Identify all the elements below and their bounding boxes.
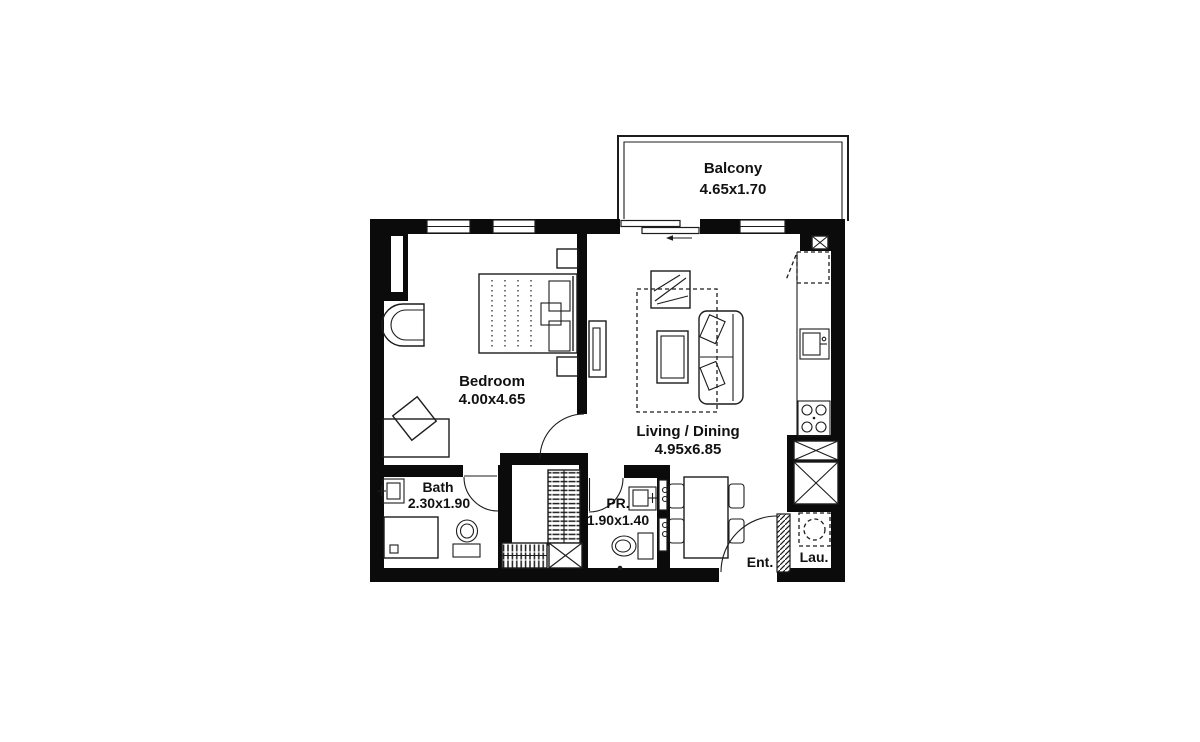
- label-powder-room: PR. 1.90x1.40: [587, 495, 649, 528]
- floor-plan-page: Balcony 4.65x1.70 Bedroom 4.00x4.65 Livi…: [0, 0, 1200, 742]
- entrance-name: Ent.: [747, 554, 773, 570]
- kitchen-sink: [800, 329, 829, 359]
- pr-dims: 1.90x1.40: [587, 512, 649, 528]
- coffee-table: [657, 331, 688, 383]
- sofa: [699, 311, 743, 404]
- shaft-boxes: [794, 441, 838, 504]
- bedroom-window-2: [493, 220, 535, 233]
- bath-name: Bath: [422, 479, 453, 495]
- wardrobe-vertical: [548, 470, 580, 545]
- bedroom-window-1: [427, 220, 470, 233]
- tv-console: [589, 321, 606, 377]
- balcony-dims: 4.65x1.70: [700, 181, 767, 198]
- shaft-box-hall: [549, 543, 582, 568]
- pr-sink: [629, 487, 657, 510]
- living-dining-name: Living / Dining: [636, 423, 739, 440]
- living-window: [740, 220, 785, 233]
- bathtub: [384, 517, 438, 558]
- balcony-sliding-door: [620, 219, 700, 241]
- bedroom-dims: 4.00x4.65: [459, 391, 526, 408]
- wardrobe-horizontal: [502, 543, 547, 568]
- label-bedroom: Bedroom 4.00x4.65: [459, 373, 526, 408]
- label-entrance: Ent.: [747, 554, 773, 570]
- label-laundry: Lau.: [800, 549, 829, 565]
- shaft-icon-top-right: [812, 236, 828, 249]
- pr-toilet: [612, 533, 653, 570]
- dining-chairs: [663, 484, 745, 543]
- balcony-outline: [618, 136, 848, 221]
- label-balcony: Balcony 4.65x1.70: [700, 160, 767, 198]
- bedroom-armchair: [382, 304, 424, 346]
- label-living-dining: Living / Dining 4.95x6.85: [636, 423, 739, 458]
- balcony-name: Balcony: [704, 160, 763, 177]
- desk: [383, 419, 449, 457]
- living-dining-dims: 4.95x6.85: [655, 441, 722, 458]
- label-bath: Bath 2.30x1.90: [408, 479, 470, 511]
- floor-plan-drawing: Balcony 4.65x1.70 Bedroom 4.00x4.65 Livi…: [0, 0, 1200, 742]
- nightstand-bottom: [557, 357, 578, 376]
- bath-dims: 2.30x1.90: [408, 495, 470, 511]
- entry-opening: [719, 568, 777, 582]
- bedroom-name: Bedroom: [459, 373, 525, 390]
- bath-toilet: [453, 520, 480, 557]
- nightstand-top: [557, 249, 578, 268]
- washing-machine: [799, 513, 830, 546]
- dining-table: [684, 477, 728, 558]
- stove: [798, 401, 830, 436]
- laundry-name: Lau.: [800, 549, 829, 565]
- bedroom-door: [540, 414, 584, 458]
- living-armchair: [651, 271, 690, 308]
- bed: [479, 274, 577, 353]
- pr-name: PR.: [606, 495, 629, 511]
- left-wall-window: [391, 236, 403, 292]
- fridge: [786, 252, 829, 283]
